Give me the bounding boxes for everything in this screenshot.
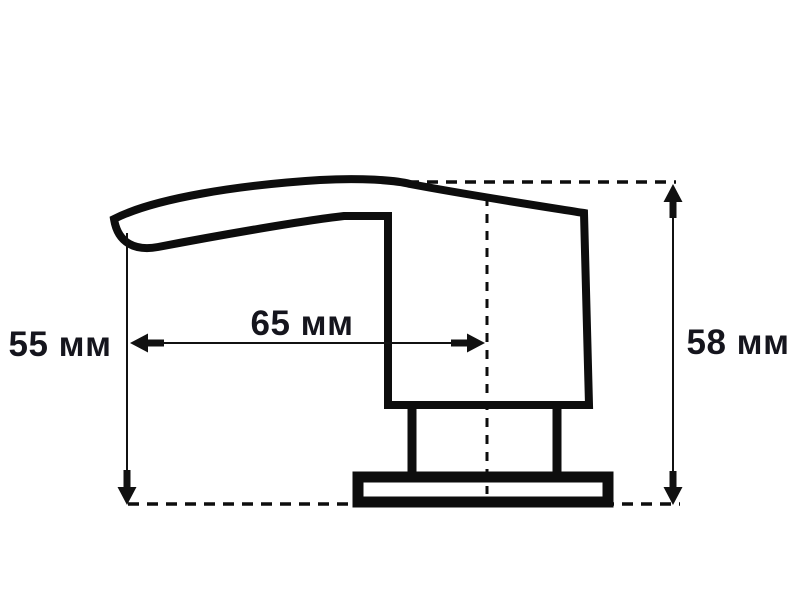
drawing-canvas: 55 мм 65 мм 58 мм <box>0 0 800 600</box>
dimension-spout-height: 55 мм <box>9 233 137 505</box>
overall-height-label: 58 мм <box>687 323 790 362</box>
arrow-down-icon <box>118 470 137 505</box>
dispenser-head-outline <box>114 179 589 405</box>
arrow-up-icon <box>664 184 683 218</box>
spout-reach-label: 65 мм <box>251 304 354 343</box>
arrow-left-icon <box>130 334 164 353</box>
spout-height-label: 55 мм <box>9 325 112 364</box>
dispenser-base-flange <box>358 477 608 502</box>
technical-drawing: 55 мм 65 мм 58 мм <box>0 0 800 600</box>
arrow-down-icon <box>664 471 683 505</box>
dimension-overall-height: 58 мм <box>664 184 790 505</box>
